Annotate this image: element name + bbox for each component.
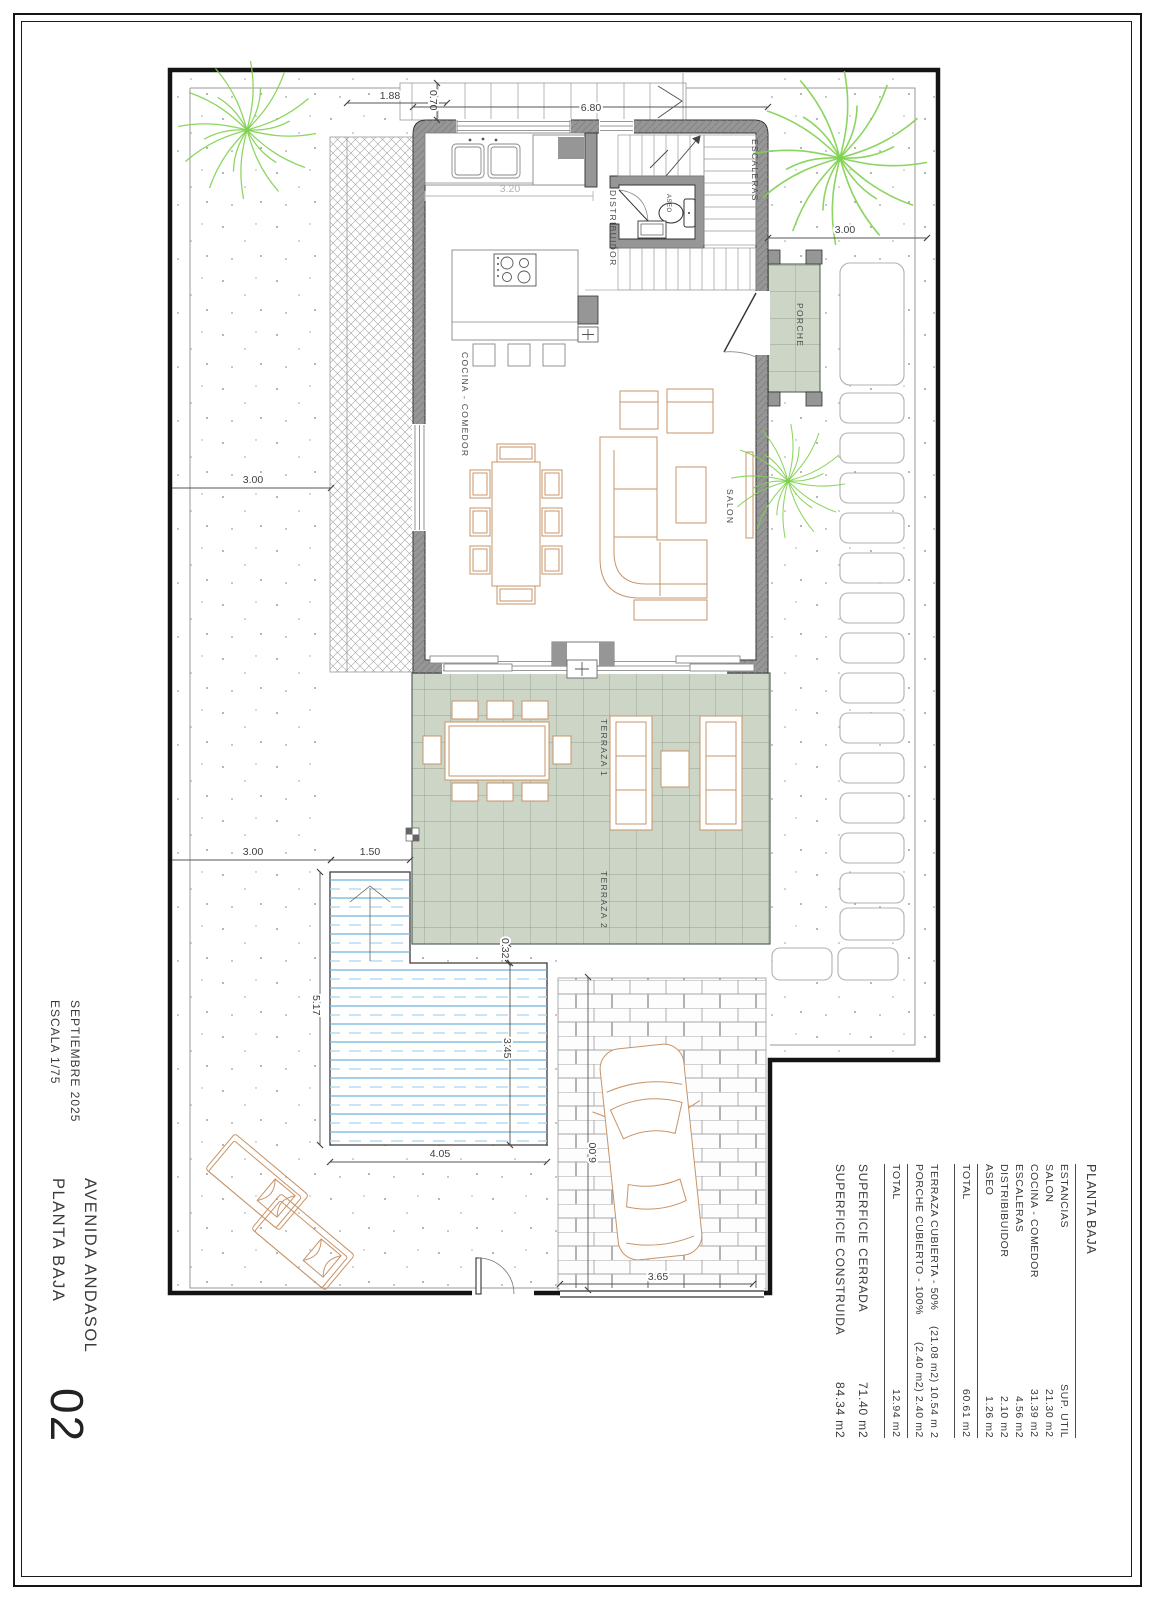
room-area: 4.56 m2 <box>1013 1396 1025 1438</box>
total-label: TOTAL <box>890 1164 902 1200</box>
dim-text: 3.00 <box>243 846 264 858</box>
area-total-row: TOTAL 60.61 m2 <box>960 1164 972 1438</box>
dim-text: 3.65 <box>648 1271 669 1283</box>
room-name: SALON <box>1043 1164 1055 1203</box>
room-label-escaleras: ESCALERAS <box>750 139 760 202</box>
total-area: 60.61 m2 <box>960 1389 972 1438</box>
dim-text: 6.80 <box>581 102 602 114</box>
area-row: SALON 21.30 m2 <box>1043 1164 1055 1438</box>
top-walkway-band <box>400 73 686 120</box>
room-name: TERRAZA CUBIERTA - 50% <box>928 1164 940 1310</box>
area-table-title-text: PLANTA BAJA <box>1084 1164 1098 1255</box>
col-area-header: SUP. UTIL <box>1058 1384 1070 1438</box>
dim-text: 1.88 <box>380 90 401 102</box>
dim-text: 0.70 <box>427 90 439 111</box>
area-total-row: TOTAL 12.94 m2 <box>890 1164 902 1438</box>
room-area: 31.39 m2 <box>1028 1389 1040 1438</box>
room-label-salon: SALON <box>725 489 735 524</box>
titleblock-date: SEPTIEMBRE 2025 <box>68 1000 82 1122</box>
room-area: (21.08 m2) 10.54 m 2 <box>928 1326 940 1438</box>
table-rule <box>884 1164 885 1438</box>
sink-icon <box>638 221 666 238</box>
col-room-header: ESTANCIAS <box>1058 1164 1070 1228</box>
area-table: PLANTA BAJA ESTANCIAS SUP. UTIL SALON 21… <box>788 1164 1098 1438</box>
area-row: COCINA - COMEDOR 31.39 m2 <box>1028 1164 1040 1438</box>
table-rule <box>977 1164 978 1438</box>
room-label-aseo: ASEO <box>665 194 671 213</box>
room-label-distribuidor: DISTRIBUIDOR <box>608 190 618 267</box>
dim-text: 0.32 <box>499 938 511 959</box>
driveway-gate <box>560 1288 764 1299</box>
room-label-terraza-2: TERRAZA 2 <box>599 871 609 929</box>
summary-area: 71.40 m2 <box>856 1382 870 1438</box>
room-name: ASEO <box>983 1164 995 1196</box>
titleblock-project-name: AVENIDA ANDASOL <box>80 1178 99 1353</box>
area-row: PORCHE CUBIERTO - 100% (2.40 m2) 2.40 m2 <box>913 1164 925 1438</box>
sheet-number: 02 <box>40 1388 94 1443</box>
summary-area: 84.34 m2 <box>833 1382 847 1438</box>
side-hatch-strip <box>330 137 413 672</box>
area-row: DISTRIBIBUIDOR 2.10 m2 <box>998 1164 1010 1438</box>
dim-text: 3.00 <box>243 474 264 486</box>
kitchen-counter <box>425 133 585 185</box>
dim-text: 3.20 <box>500 183 521 195</box>
room-area: 2.10 m2 <box>998 1396 1010 1438</box>
titleblock-scale: ESCALA 1/75 <box>48 1000 62 1084</box>
dim-text: 3.45 <box>501 1038 513 1059</box>
room-label-cocina-comedor: COCINA - COMEDOR <box>460 352 470 457</box>
area-row: ASEO 1.26 m2 <box>983 1164 995 1438</box>
titleblock-plan-name: PLANTA BAJA <box>48 1178 67 1302</box>
dim-text: 1.50 <box>360 846 381 858</box>
dim-text: 3.00 <box>835 224 856 236</box>
room-area: (2.40 m2) 2.40 m2 <box>913 1342 925 1438</box>
bar-stools <box>473 344 565 366</box>
dim-text: 5.17 <box>310 995 322 1016</box>
table-rule <box>1075 1164 1076 1438</box>
room-name: DISTRIBIBUIDOR <box>998 1164 1010 1258</box>
tv-bench <box>746 452 753 538</box>
room-name: ESCALERAS <box>1013 1164 1025 1232</box>
room-label-porche: PORCHE <box>795 303 805 347</box>
total-label: TOTAL <box>960 1164 972 1200</box>
drain-checker-symbol <box>406 828 419 841</box>
area-table-title: PLANTA BAJA <box>1084 1164 1098 1438</box>
dim-text: 4.05 <box>430 1148 451 1160</box>
total-area: 12.94 m2 <box>890 1389 902 1438</box>
corridor-wall <box>585 133 597 187</box>
room-area: 1.26 m2 <box>983 1396 995 1438</box>
summary-row: SUPERFICIE CERRADA 71.40 m2 <box>856 1164 870 1438</box>
area-row: TERRAZA CUBIERTA - 50% (21.08 m2) 10.54 … <box>928 1164 940 1438</box>
summary-name: SUPERFICIE CONSTRUIDA <box>833 1164 847 1335</box>
room-name: PORCHE CUBIERTO - 100% <box>913 1164 925 1315</box>
table-rule <box>954 1164 955 1438</box>
kitchen-island <box>452 250 598 342</box>
table-rule <box>907 1164 908 1438</box>
room-label-terraza-1: TERRAZA 1 <box>599 719 609 777</box>
summary-name: SUPERFICIE CERRADA <box>856 1164 870 1312</box>
area-row: ESCALERAS 4.56 m2 <box>1013 1164 1025 1438</box>
dim-text: 6.00 <box>587 1142 599 1163</box>
dimension-1-50: 1.50 <box>331 846 410 860</box>
summary-row: SUPERFICIE CONSTRUIDA 84.34 m2 <box>833 1164 847 1438</box>
room-area: 21.30 m2 <box>1043 1389 1055 1438</box>
area-table-header: ESTANCIAS SUP. UTIL <box>1058 1164 1070 1438</box>
porch <box>768 250 822 406</box>
cooktop-icon <box>494 254 536 286</box>
room-name: COCINA - COMEDOR <box>1028 1164 1040 1278</box>
